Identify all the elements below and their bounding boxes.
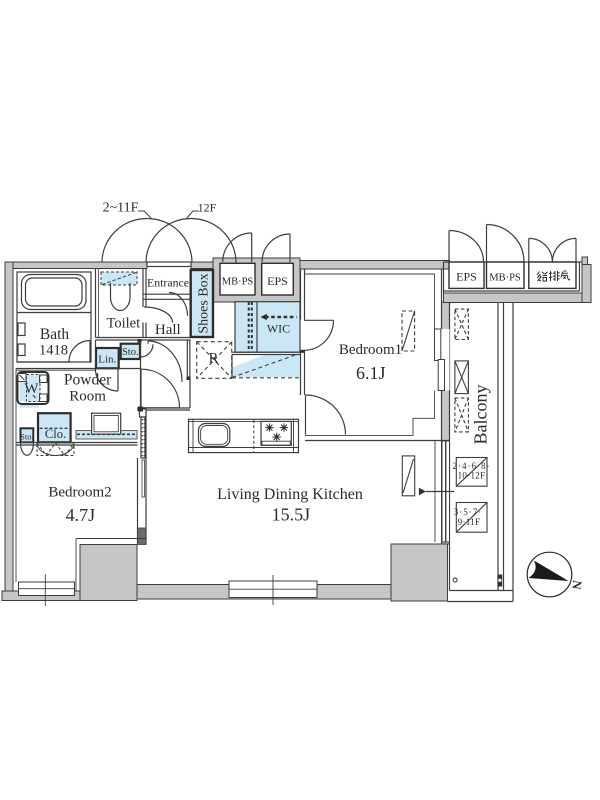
svg-text:EPS: EPS xyxy=(267,274,288,288)
svg-text:10·12F: 10·12F xyxy=(458,471,486,481)
svg-text:Sto.: Sto. xyxy=(122,347,139,358)
svg-text:Bedroom1: Bedroom1 xyxy=(339,342,402,358)
svg-text:Toilet: Toilet xyxy=(106,316,140,332)
svg-text:W: W xyxy=(24,381,39,397)
svg-text:R: R xyxy=(209,351,219,367)
svg-text:Hall: Hall xyxy=(155,322,181,338)
svg-text:Living Dining Kitchen: Living Dining Kitchen xyxy=(217,486,363,503)
svg-text:Clo.: Clo. xyxy=(45,427,66,441)
svg-text:15.5J: 15.5J xyxy=(272,505,311,525)
svg-text:Balcony: Balcony xyxy=(471,385,491,445)
svg-text:2~11F: 2~11F xyxy=(103,201,139,216)
svg-text:EPS: EPS xyxy=(456,270,477,284)
svg-text:3·5·7·: 3·5·7· xyxy=(454,507,483,517)
svg-text:Powder: Powder xyxy=(64,372,112,389)
svg-text:Bath: Bath xyxy=(40,326,70,343)
svg-text:2·4·6·8·: 2·4·6·8· xyxy=(453,461,491,471)
svg-text:Room: Room xyxy=(69,389,106,405)
svg-text:Lin.: Lin. xyxy=(98,354,116,366)
svg-text:9·11F: 9·11F xyxy=(458,517,481,527)
svg-text:Bedroom2: Bedroom2 xyxy=(48,485,111,501)
svg-text:MB·PS: MB·PS xyxy=(489,273,521,284)
svg-text:4.7J: 4.7J xyxy=(66,505,96,525)
svg-text:1418: 1418 xyxy=(39,343,68,359)
svg-text:WIC: WIC xyxy=(267,322,290,336)
svg-text:Sto.: Sto. xyxy=(20,432,33,442)
svg-text:12F: 12F xyxy=(198,201,217,215)
svg-text:Shoes Box: Shoes Box xyxy=(197,273,212,333)
svg-text:MB·PS: MB·PS xyxy=(222,277,254,288)
svg-text:6.1J: 6.1J xyxy=(356,363,386,383)
svg-text:Entrance: Entrance xyxy=(147,276,189,290)
